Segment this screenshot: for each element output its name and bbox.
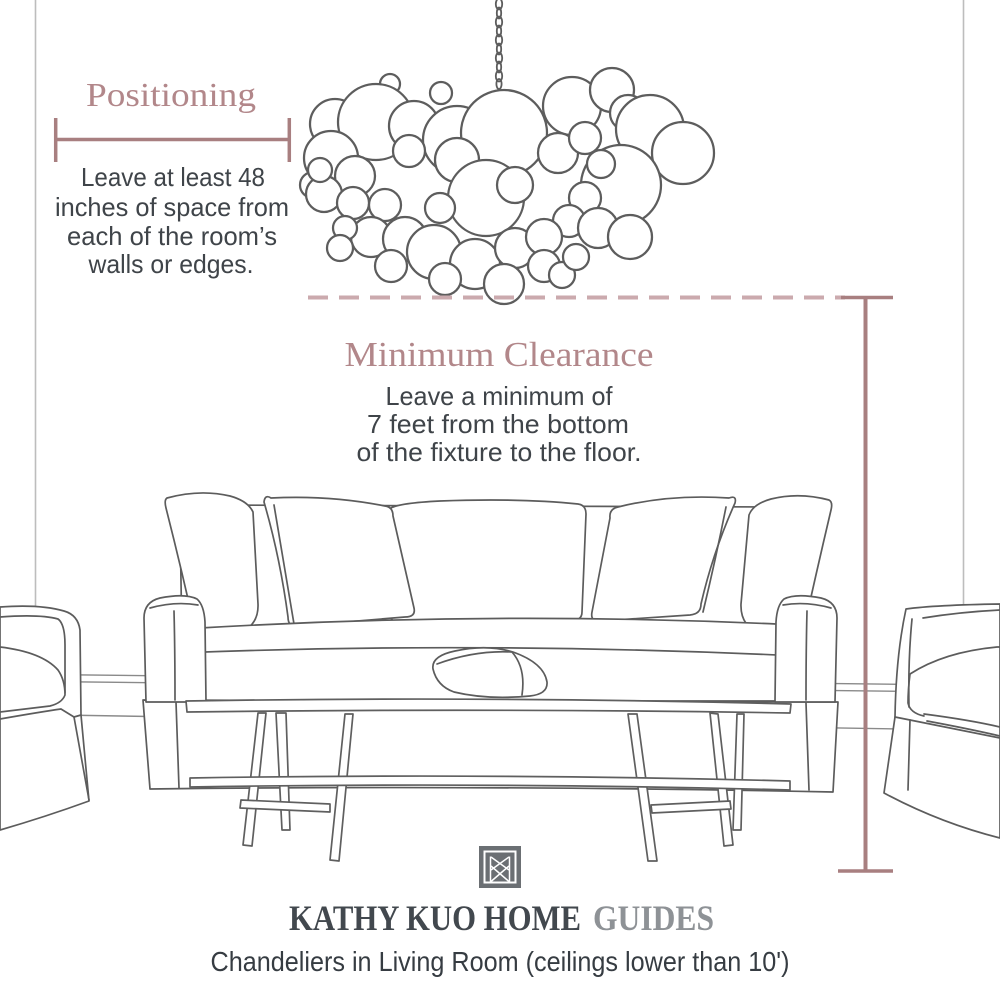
svg-text:Leave at least 48: Leave at least 48	[81, 162, 265, 192]
svg-text:KATHY KUO HOME: KATHY KUO HOME	[289, 898, 581, 938]
svg-text:7 feet from the bottom: 7 feet from the bottom	[367, 409, 629, 439]
svg-text:Minimum Clearance: Minimum Clearance	[345, 335, 654, 374]
svg-text:of the fixture to the floor.: of the fixture to the floor.	[357, 437, 642, 467]
svg-text:inches of space from: inches of space from	[55, 192, 289, 222]
svg-text:Leave a minimum of: Leave a minimum of	[386, 381, 614, 411]
svg-text:Chandeliers in Living Room (ce: Chandeliers in Living Room (ceilings low…	[211, 946, 790, 977]
svg-text:Positioning: Positioning	[86, 77, 256, 114]
svg-text:each of the room’s: each of the room’s	[67, 221, 277, 251]
svg-text:walls or edges.: walls or edges.	[88, 249, 254, 279]
svg-text:GUIDES: GUIDES	[593, 898, 714, 938]
